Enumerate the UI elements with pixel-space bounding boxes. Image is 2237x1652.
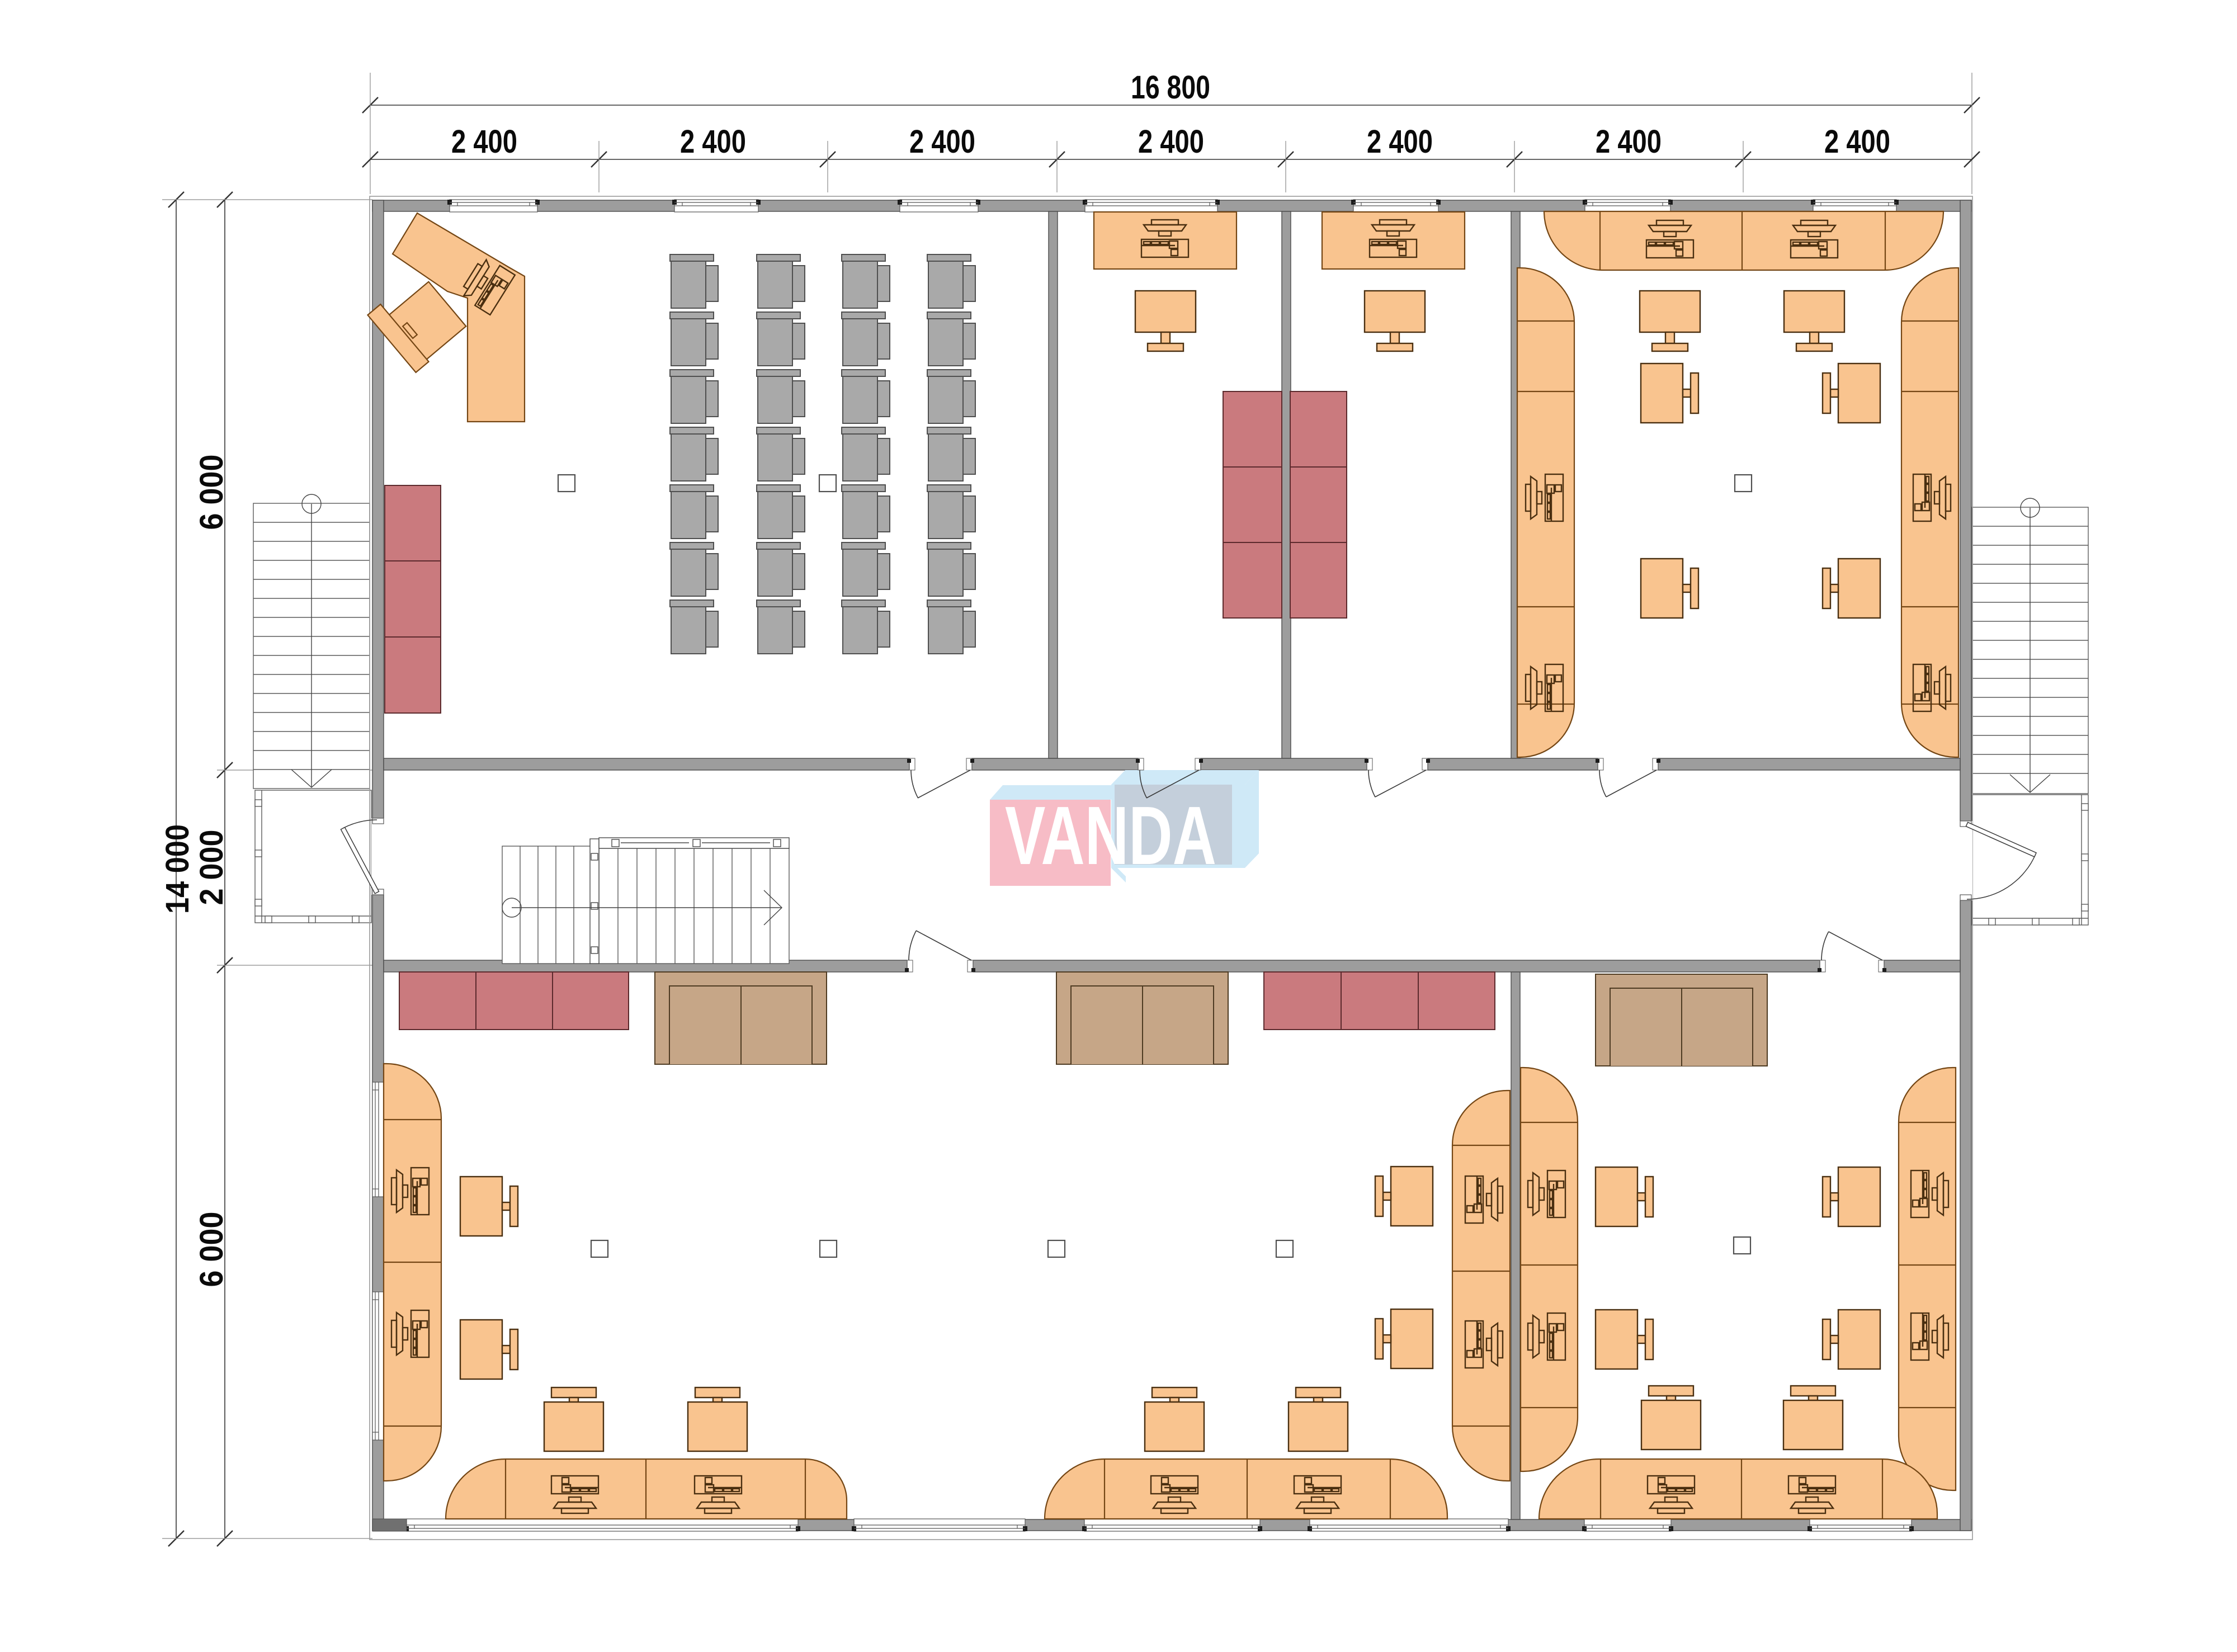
svg-text:14 000: 14 000 bbox=[159, 824, 196, 914]
svg-text:2 400: 2 400 bbox=[1824, 124, 1890, 160]
svg-text:VANDA: VANDA bbox=[1005, 790, 1216, 882]
svg-text:2 000: 2 000 bbox=[194, 830, 230, 905]
svg-text:2 400: 2 400 bbox=[909, 124, 975, 160]
svg-text:2 400: 2 400 bbox=[680, 124, 746, 160]
svg-text:16 800: 16 800 bbox=[1131, 69, 1210, 106]
svg-text:2 400: 2 400 bbox=[1367, 124, 1433, 160]
svg-text:2 400: 2 400 bbox=[1596, 124, 1662, 160]
svg-text:6 000: 6 000 bbox=[194, 455, 230, 530]
svg-text:6 000: 6 000 bbox=[194, 1212, 230, 1287]
svg-text:2 400: 2 400 bbox=[1138, 124, 1204, 160]
svg-text:2 400: 2 400 bbox=[451, 124, 517, 160]
